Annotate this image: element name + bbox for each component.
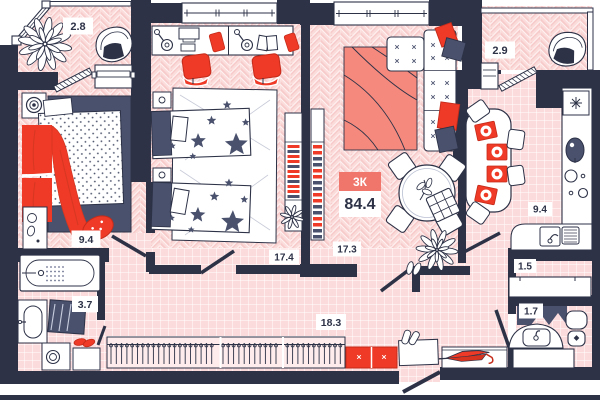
svg-text:2.8: 2.8 [70,21,85,33]
svg-text:3К: 3К [353,175,368,189]
svg-text:9.4: 9.4 [533,205,547,216]
svg-text:17.3: 17.3 [337,245,357,256]
svg-text:84.4: 84.4 [344,196,375,213]
svg-text:18.3: 18.3 [321,317,342,329]
svg-text:9.4: 9.4 [79,234,94,246]
svg-text:17.4: 17.4 [274,253,294,264]
svg-text:2.9: 2.9 [492,45,507,57]
svg-text:1.5: 1.5 [518,262,532,273]
svg-text:1.7: 1.7 [524,307,538,318]
svg-text:3.7: 3.7 [78,299,93,311]
